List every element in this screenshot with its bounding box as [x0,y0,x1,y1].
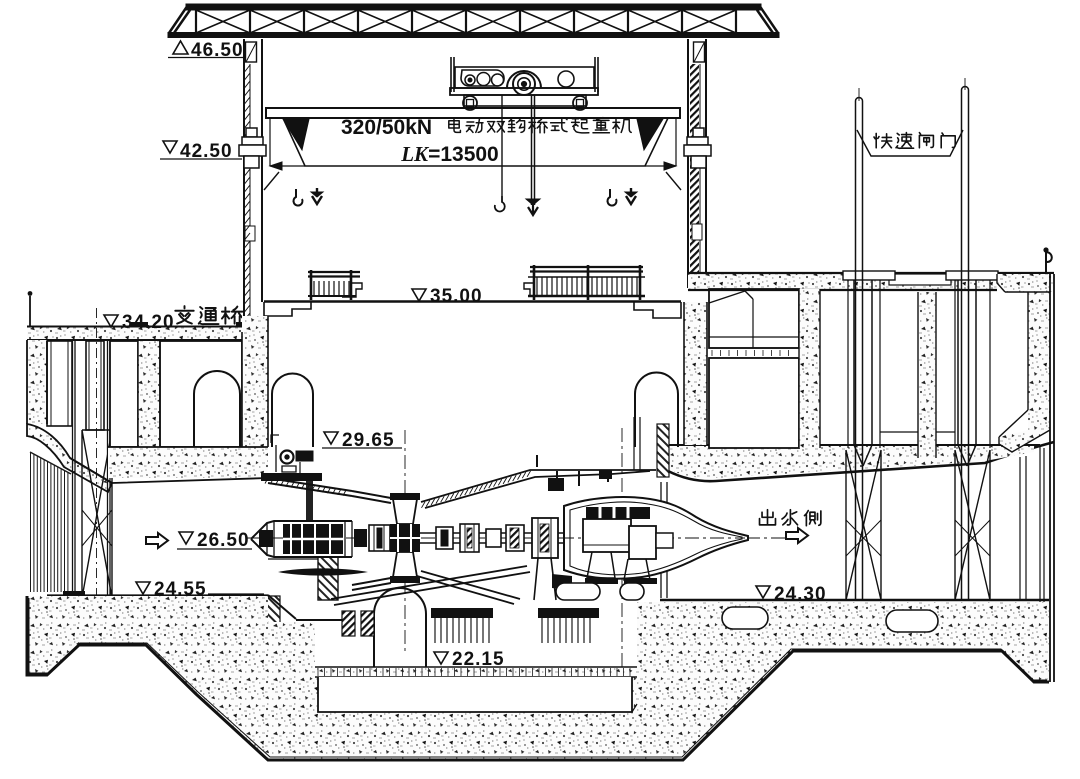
svg-text:320/50kN: 320/50kN [341,116,432,139]
svg-text:26.50: 26.50 [197,530,250,551]
svg-text:24.30: 24.30 [774,584,827,605]
svg-text:LK=13500: LK=13500 [400,142,499,166]
svg-text:34.20: 34.20 [122,312,175,333]
svg-text:35.00: 35.00 [430,286,483,307]
